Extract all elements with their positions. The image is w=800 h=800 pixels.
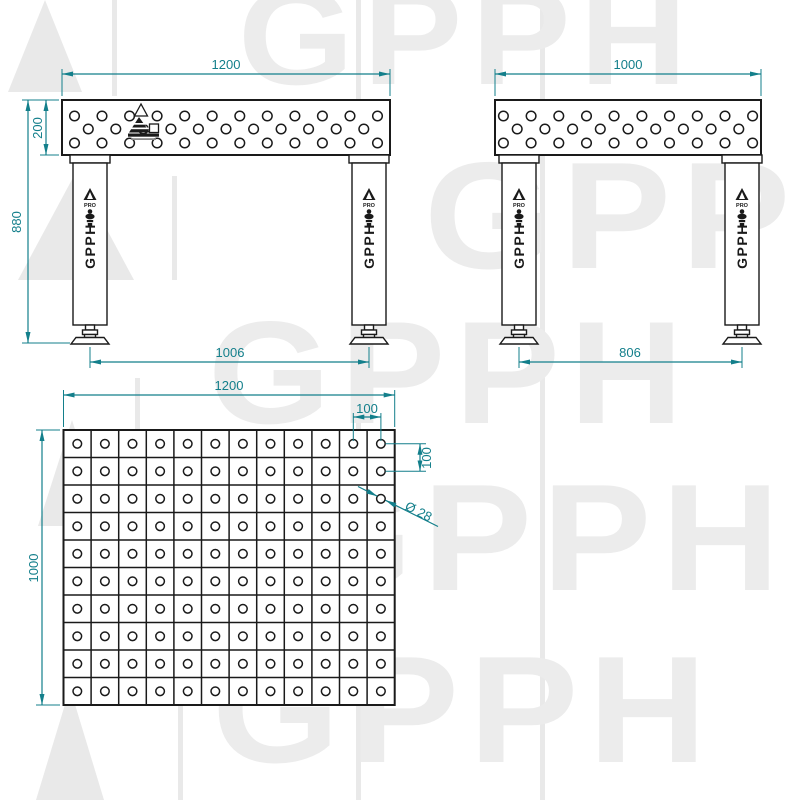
front-width-dimension: 1200 xyxy=(212,57,241,72)
stamp-stripe xyxy=(130,128,150,130)
system-hole xyxy=(235,111,245,121)
system-hole xyxy=(156,440,165,449)
system-hole xyxy=(152,111,162,121)
front-leg-span-dimension: 1006 xyxy=(216,345,245,360)
system-hole xyxy=(183,467,192,476)
system-hole xyxy=(266,687,275,696)
system-hole xyxy=(294,522,303,531)
system-hole xyxy=(377,577,386,586)
system-hole xyxy=(128,687,137,696)
system-hole xyxy=(693,111,703,121)
system-hole xyxy=(183,605,192,614)
system-hole xyxy=(321,660,330,669)
front-top-height-dimension: 200 xyxy=(30,117,45,139)
system-hole xyxy=(349,632,358,641)
system-hole xyxy=(156,577,165,586)
system-hole xyxy=(266,495,275,504)
system-hole xyxy=(294,605,303,614)
system-hole xyxy=(180,138,190,148)
system-hole xyxy=(294,687,303,696)
system-hole xyxy=(211,522,220,531)
system-hole xyxy=(318,138,328,148)
system-hole xyxy=(207,138,217,148)
leg-seal-icon xyxy=(514,214,523,220)
system-hole xyxy=(748,138,758,148)
system-hole xyxy=(321,467,330,476)
system-hole xyxy=(211,440,220,449)
leg-seal-icon xyxy=(517,209,522,214)
system-hole xyxy=(266,632,275,641)
system-hole xyxy=(266,577,275,586)
system-hole xyxy=(294,550,303,559)
system-hole xyxy=(183,522,192,531)
leg-seal-icon xyxy=(364,214,373,220)
system-hole xyxy=(266,467,275,476)
system-hole xyxy=(263,138,273,148)
system-hole xyxy=(70,138,80,148)
top-width-dimension: 1200 xyxy=(215,378,244,393)
system-hole xyxy=(321,687,330,696)
system-hole xyxy=(349,687,358,696)
system-hole xyxy=(331,124,341,134)
system-hole xyxy=(128,467,137,476)
system-hole xyxy=(73,550,82,559)
system-hole xyxy=(526,111,536,121)
system-hole xyxy=(720,138,730,148)
system-hole xyxy=(239,440,248,449)
system-hole xyxy=(221,124,231,134)
system-hole xyxy=(128,440,137,449)
system-hole xyxy=(290,138,300,148)
system-hole xyxy=(377,522,386,531)
system-hole xyxy=(266,550,275,559)
leg-brand-label: GPPH xyxy=(511,223,527,269)
system-hole xyxy=(128,632,137,641)
system-hole xyxy=(321,440,330,449)
system-hole xyxy=(373,111,383,121)
system-hole xyxy=(101,687,110,696)
system-hole xyxy=(101,632,110,641)
system-hole xyxy=(665,111,675,121)
system-hole xyxy=(321,495,330,504)
system-hole xyxy=(239,632,248,641)
system-hole xyxy=(73,440,82,449)
system-hole xyxy=(128,522,137,531)
system-hole xyxy=(266,440,275,449)
system-hole xyxy=(349,577,358,586)
system-hole xyxy=(345,111,355,121)
system-hole xyxy=(239,605,248,614)
system-hole xyxy=(734,124,744,134)
leg-mount xyxy=(349,155,389,163)
system-hole xyxy=(239,550,248,559)
system-hole xyxy=(349,467,358,476)
system-hole xyxy=(554,111,564,121)
foot-plate xyxy=(500,338,538,345)
leg-brand-sub-label: PRO xyxy=(513,203,526,209)
system-hole xyxy=(73,660,82,669)
stamp-box xyxy=(150,124,159,133)
system-hole xyxy=(582,111,592,121)
system-hole xyxy=(183,550,192,559)
hole-spacing-x-dimension: 100 xyxy=(356,401,378,416)
front-total-height-dimension: 880 xyxy=(9,211,24,233)
foot-stem xyxy=(86,325,95,330)
system-hole xyxy=(294,632,303,641)
system-hole xyxy=(239,687,248,696)
system-hole xyxy=(97,111,107,121)
system-hole xyxy=(239,495,248,504)
system-hole xyxy=(211,467,220,476)
system-hole xyxy=(266,605,275,614)
leg-brand-label: GPPH xyxy=(361,223,377,269)
system-hole xyxy=(609,138,619,148)
leg-brand-sub-label: PRO xyxy=(736,203,749,209)
leg-seal-icon xyxy=(87,220,93,222)
system-hole xyxy=(183,632,192,641)
system-hole xyxy=(207,111,217,121)
leg-seal-icon xyxy=(366,220,372,222)
system-hole xyxy=(377,550,386,559)
system-hole xyxy=(623,124,633,134)
system-hole xyxy=(73,522,82,531)
system-hole xyxy=(609,111,619,121)
system-hole xyxy=(321,522,330,531)
system-hole xyxy=(266,660,275,669)
system-hole xyxy=(156,632,165,641)
system-hole xyxy=(183,660,192,669)
system-hole xyxy=(377,660,386,669)
system-hole xyxy=(679,124,689,134)
system-hole xyxy=(526,138,536,148)
system-hole xyxy=(748,111,758,121)
leg-brand-sub-label: PRO xyxy=(363,203,376,209)
system-hole xyxy=(720,111,730,121)
system-hole xyxy=(211,605,220,614)
system-hole xyxy=(377,632,386,641)
system-hole xyxy=(321,605,330,614)
system-hole xyxy=(568,124,578,134)
system-hole xyxy=(239,577,248,586)
leg-brand-label: GPPH xyxy=(82,223,98,269)
system-hole xyxy=(128,550,137,559)
system-hole xyxy=(73,687,82,696)
leg-mount xyxy=(70,155,110,163)
system-hole xyxy=(97,138,107,148)
system-hole xyxy=(183,495,192,504)
system-hole xyxy=(294,467,303,476)
hole-spacing-y-dimension: 100 xyxy=(419,447,434,469)
leg-mount xyxy=(499,155,539,163)
system-hole xyxy=(318,111,328,121)
system-hole xyxy=(101,605,110,614)
stamp-caption xyxy=(131,138,156,140)
system-hole xyxy=(183,440,192,449)
system-hole xyxy=(239,660,248,669)
system-hole xyxy=(294,440,303,449)
system-hole xyxy=(166,124,176,134)
system-hole xyxy=(156,660,165,669)
system-hole xyxy=(101,577,110,586)
system-hole xyxy=(101,522,110,531)
system-hole xyxy=(345,138,355,148)
system-hole xyxy=(239,467,248,476)
foot-plate xyxy=(350,338,388,345)
system-hole xyxy=(239,522,248,531)
front-view: PROGPPHPROGPPH 1200 200 880 1006 xyxy=(9,57,390,368)
technical-drawing: PROGPPHPROGPPH 1200 200 880 1006 PROGPPH… xyxy=(0,0,800,800)
system-hole xyxy=(263,111,273,121)
system-hole xyxy=(249,124,259,134)
system-hole xyxy=(349,660,358,669)
system-hole xyxy=(582,138,592,148)
leg-brand-label: GPPH xyxy=(734,223,750,269)
system-hole xyxy=(294,577,303,586)
system-hole xyxy=(349,550,358,559)
system-hole xyxy=(194,124,204,134)
system-hole xyxy=(101,440,110,449)
leg-seal-icon xyxy=(88,209,93,214)
system-hole xyxy=(156,687,165,696)
side-leg-span-dimension: 806 xyxy=(619,345,641,360)
system-hole xyxy=(540,124,550,134)
system-hole xyxy=(125,111,135,121)
side-width-dimension: 1000 xyxy=(614,57,643,72)
side-view: PROGPPHPROGPPH 1000 806 xyxy=(495,57,762,368)
system-hole xyxy=(183,577,192,586)
system-hole xyxy=(499,111,509,121)
system-hole xyxy=(304,124,314,134)
system-hole xyxy=(211,550,220,559)
system-hole xyxy=(211,495,220,504)
system-hole xyxy=(111,124,121,134)
system-hole xyxy=(101,467,110,476)
system-hole xyxy=(349,605,358,614)
system-hole xyxy=(235,138,245,148)
system-hole xyxy=(73,495,82,504)
top-view: 1200 1000 100 100 Ø 28 xyxy=(26,378,438,705)
system-hole xyxy=(101,550,110,559)
system-hole xyxy=(101,660,110,669)
system-hole xyxy=(156,605,165,614)
system-hole xyxy=(156,495,165,504)
system-hole xyxy=(321,577,330,586)
system-hole xyxy=(211,660,220,669)
system-hole xyxy=(128,495,137,504)
system-hole xyxy=(101,495,110,504)
system-hole xyxy=(637,138,647,148)
system-hole xyxy=(651,124,661,134)
system-hole xyxy=(84,124,94,134)
foot-plate xyxy=(71,338,109,345)
system-hole xyxy=(596,124,606,134)
system-hole xyxy=(128,577,137,586)
system-hole xyxy=(156,550,165,559)
drawing-page: GPPHGPPHGPPHGPPHGPPH PROGPPHPROGPPH 1200… xyxy=(0,0,800,800)
system-hole xyxy=(637,111,647,121)
system-hole xyxy=(359,124,369,134)
system-hole xyxy=(183,687,192,696)
system-hole xyxy=(70,111,80,121)
hole-diameter-dimension: Ø 28 xyxy=(403,498,435,524)
system-hole xyxy=(377,495,386,504)
system-hole xyxy=(73,605,82,614)
stamp-stripe xyxy=(131,123,149,125)
system-hole xyxy=(211,632,220,641)
system-hole xyxy=(73,577,82,586)
system-hole xyxy=(706,124,716,134)
top-depth-dimension: 1000 xyxy=(26,554,41,583)
system-hole xyxy=(294,660,303,669)
foot-stem xyxy=(365,325,374,330)
system-hole xyxy=(266,522,275,531)
system-hole xyxy=(554,138,564,148)
system-hole xyxy=(349,522,358,531)
leg-seal-icon xyxy=(367,209,372,214)
system-hole xyxy=(349,495,358,504)
leg-seal-icon xyxy=(85,214,94,220)
leg-mount xyxy=(722,155,762,163)
system-hole xyxy=(180,111,190,121)
system-hole xyxy=(128,660,137,669)
system-hole xyxy=(211,577,220,586)
system-hole xyxy=(290,111,300,121)
system-hole xyxy=(377,605,386,614)
leg-seal-icon xyxy=(737,214,746,220)
system-hole xyxy=(73,467,82,476)
leg-seal-icon xyxy=(740,209,745,214)
foot-stem xyxy=(515,325,524,330)
system-hole xyxy=(693,138,703,148)
leg-seal-icon xyxy=(739,220,745,222)
foot-stem xyxy=(738,325,747,330)
system-hole xyxy=(512,124,522,134)
leg-brand-sub-label: PRO xyxy=(84,203,97,209)
leg-seal-icon xyxy=(516,220,522,222)
system-hole xyxy=(321,550,330,559)
system-hole xyxy=(211,687,220,696)
system-hole xyxy=(373,138,383,148)
system-hole xyxy=(665,138,675,148)
system-hole xyxy=(321,632,330,641)
system-hole xyxy=(156,467,165,476)
system-hole xyxy=(377,467,386,476)
system-hole xyxy=(128,605,137,614)
system-hole xyxy=(499,138,509,148)
system-hole xyxy=(377,687,386,696)
system-hole xyxy=(294,495,303,504)
system-hole xyxy=(276,124,286,134)
stamp-base xyxy=(128,134,159,137)
foot-plate xyxy=(723,338,761,345)
system-hole xyxy=(73,632,82,641)
system-hole xyxy=(156,522,165,531)
